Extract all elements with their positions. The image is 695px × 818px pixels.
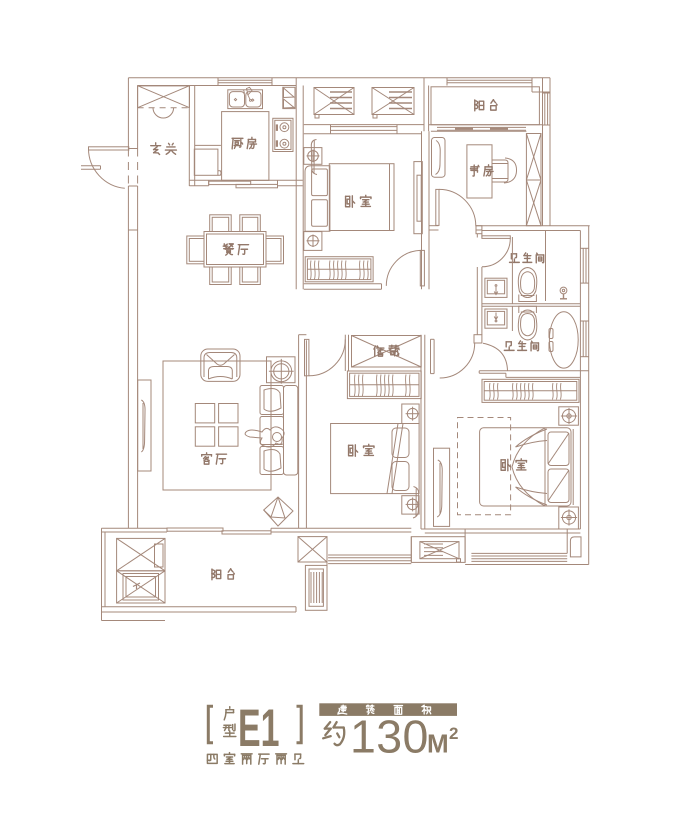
svg-text:E1: E1: [238, 700, 279, 758]
svg-text:130: 130: [350, 711, 429, 763]
svg-text:2: 2: [449, 724, 458, 743]
svg-text:M: M: [427, 729, 449, 759]
